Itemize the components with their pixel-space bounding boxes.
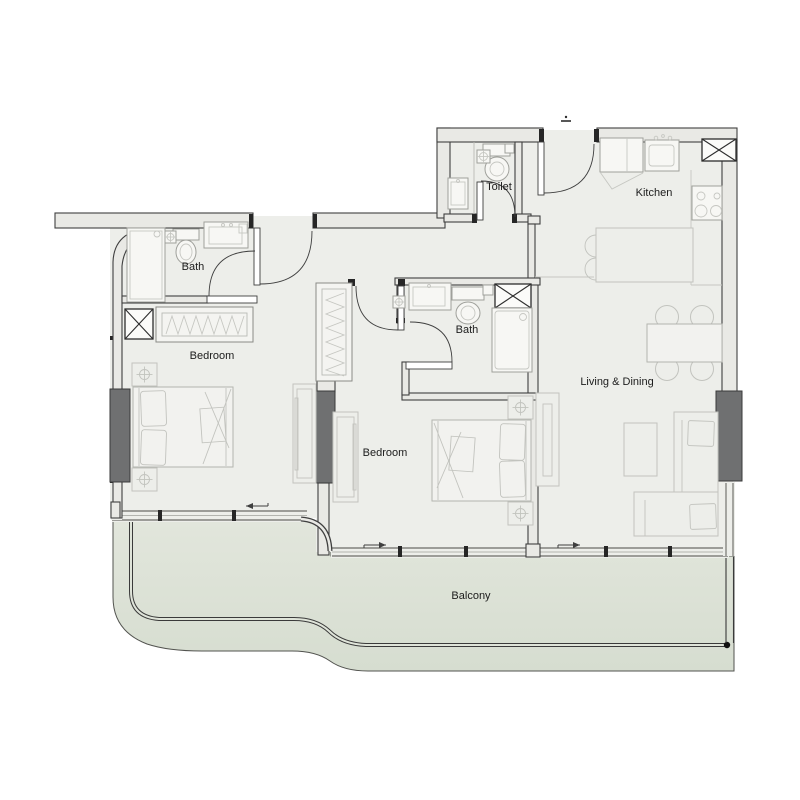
shower-icon bbox=[492, 308, 532, 372]
kitchen-sink-icon bbox=[645, 135, 679, 171]
room-label-living-dining: Living & Dining bbox=[580, 376, 653, 388]
entry-door-leaf bbox=[254, 228, 260, 285]
wall-hall-stub bbox=[528, 216, 540, 224]
sink-icon bbox=[409, 283, 451, 310]
room-label-kitchen: Kitchen bbox=[636, 187, 673, 199]
room-label-bath-middle: Bath bbox=[456, 324, 479, 336]
valve-icon bbox=[393, 296, 405, 308]
room-label-toilet: Toilet bbox=[486, 181, 512, 193]
wall-toilet-right bbox=[515, 142, 522, 216]
wall-divider-stub bbox=[317, 381, 335, 392]
nightstand-icon bbox=[132, 468, 157, 491]
island-counter bbox=[596, 228, 693, 282]
toilet-door-leaf bbox=[477, 182, 483, 220]
valve-icon bbox=[165, 231, 176, 243]
wardrobe-icon bbox=[156, 307, 253, 342]
room-label-balcony: Balcony bbox=[451, 590, 491, 602]
sink-icon bbox=[448, 178, 468, 209]
room-label-bedroom-left: Bedroom bbox=[190, 350, 235, 362]
column bbox=[716, 391, 742, 481]
room-label-bedroom-middle: Bedroom bbox=[363, 447, 408, 459]
sink-icon bbox=[204, 222, 248, 248]
floor-plan-page: Toilet Kitchen Bath Bath Bedroom Bedroom… bbox=[0, 0, 800, 800]
dresser-icon bbox=[333, 412, 358, 502]
wardrobe-icon bbox=[316, 283, 352, 381]
wall-window-pier bbox=[526, 544, 540, 557]
double-bed-icon bbox=[133, 387, 233, 467]
coffee-table-icon bbox=[624, 423, 657, 476]
breakfast-bar bbox=[585, 228, 693, 282]
wall-kitchen-hall bbox=[528, 224, 535, 284]
kitchen-entry-door-leaf bbox=[538, 142, 544, 195]
shaft-icon bbox=[702, 139, 736, 161]
tv-console-icon bbox=[536, 393, 559, 486]
column bbox=[110, 389, 130, 482]
railing-end-post bbox=[724, 642, 730, 648]
wall-right bbox=[722, 140, 737, 392]
entry-marker-dot bbox=[565, 116, 567, 118]
room-label-bath-left: Bath bbox=[182, 261, 205, 273]
shaft-icon bbox=[495, 284, 531, 308]
dresser-icon bbox=[293, 384, 316, 483]
bath-left-door-leaf bbox=[207, 296, 257, 303]
floor-plan-drawing: Toilet Kitchen Bath Bath Bedroom Bedroom… bbox=[0, 0, 800, 800]
stove-icon bbox=[692, 186, 722, 220]
shower-icon bbox=[127, 228, 165, 302]
wall-left-corner bbox=[111, 502, 120, 518]
valve-icon bbox=[477, 150, 490, 163]
nightstand-icon bbox=[508, 396, 533, 419]
wall-toilet-bottom bbox=[444, 214, 476, 222]
nightstand-icon bbox=[132, 363, 157, 386]
nightstand-icon bbox=[508, 502, 533, 525]
bath-middle-door-leaf bbox=[406, 362, 452, 369]
wall-top bbox=[437, 128, 543, 142]
double-bed-icon bbox=[432, 420, 531, 501]
shaft-icon bbox=[125, 309, 153, 339]
wall-top-left bbox=[313, 213, 445, 228]
